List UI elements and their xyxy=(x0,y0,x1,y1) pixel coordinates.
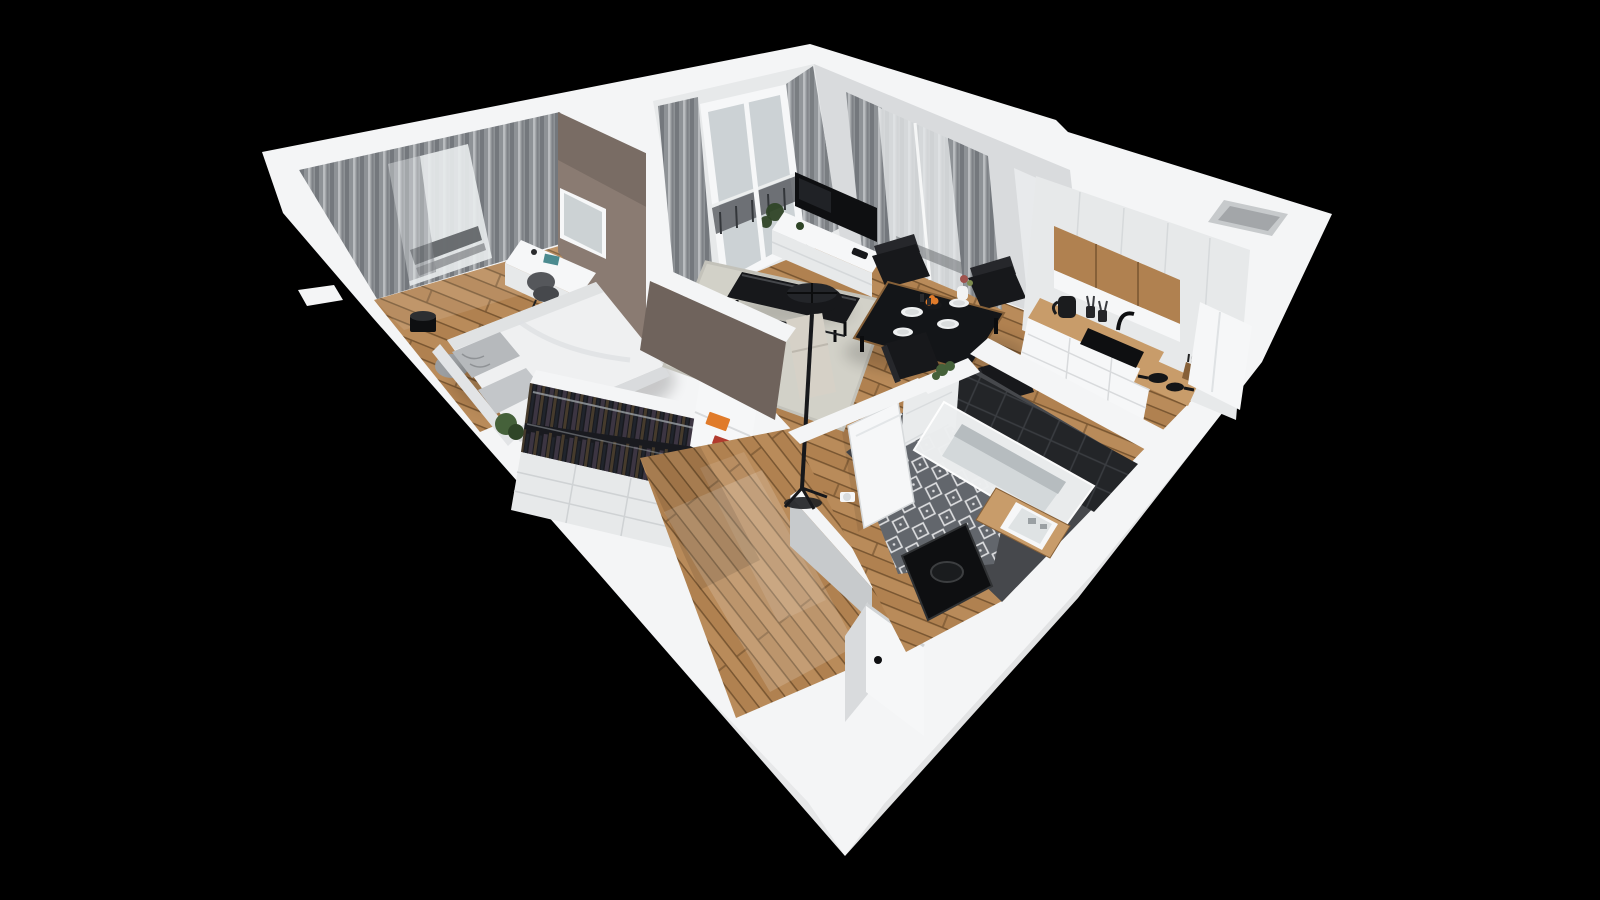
jug xyxy=(957,286,968,300)
toilet-paper-holder xyxy=(840,492,855,502)
apartment-3d-view xyxy=(0,0,1600,900)
floorplan-render xyxy=(0,0,1600,900)
door-handle xyxy=(874,656,882,664)
flowers xyxy=(960,275,968,283)
plant-pot xyxy=(410,311,436,332)
